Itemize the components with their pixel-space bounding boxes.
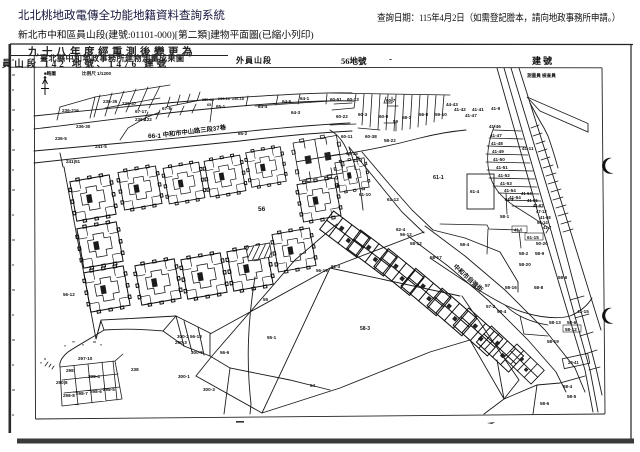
svg-text:290|8: 290|8 [56, 380, 68, 385]
svg-text:60-22: 60-22 [336, 114, 348, 119]
svg-text:41-7: 41-7 [543, 225, 552, 230]
svg-text:67-5: 67-5 [162, 106, 172, 111]
svg-text:66-1: 66-1 [148, 133, 161, 140]
svg-text:60-8: 60-8 [379, 114, 389, 119]
svg-text:58-9: 58-9 [535, 251, 545, 256]
svg-text:60-38: 60-38 [365, 134, 377, 139]
svg-text:測量員 檢查員: 測量員 檢查員 [527, 72, 556, 79]
svg-text:58-13: 58-13 [549, 320, 561, 325]
svg-text:58-4: 58-4 [460, 242, 470, 247]
svg-text:236-16: 236-16 [218, 97, 230, 101]
svg-text:41-48: 41-48 [491, 141, 503, 146]
svg-text:236-216: 236-216 [62, 108, 79, 113]
svg-text:58-22: 58-22 [384, 138, 396, 143]
svg-text:61-4: 61-4 [470, 189, 480, 194]
svg-text:55-1: 55-1 [267, 335, 277, 340]
svg-text:41-53: 41-53 [500, 181, 512, 186]
svg-text:比例尺 1/1200: 比例尺 1/1200 [82, 70, 112, 77]
svg-text:41-67: 41-67 [533, 203, 544, 208]
svg-text:58-17: 58-17 [430, 255, 442, 260]
svg-text:58-8: 58-8 [534, 285, 544, 290]
svg-text:56-19: 56-19 [316, 268, 328, 273]
svg-text:62-3: 62-3 [331, 264, 341, 269]
svg-text:57: 57 [485, 283, 491, 288]
svg-text:298-7: 298-7 [76, 391, 88, 396]
svg-text:238: 238 [131, 367, 139, 372]
svg-text:241-5: 241-5 [95, 144, 107, 149]
svg-text:58-4: 58-4 [563, 384, 573, 389]
svg-text:58-6: 58-6 [540, 401, 550, 406]
svg-text:236-122: 236-122 [135, 117, 152, 122]
svg-text:54: 54 [310, 383, 316, 388]
svg-text:55: 55 [263, 297, 269, 302]
svg-text:64-4: 64-4 [258, 104, 268, 109]
svg-text:56: 56 [258, 206, 266, 213]
svg-text:56-12: 56-12 [400, 232, 412, 237]
svg-text:65-1: 65-1 [216, 104, 226, 109]
svg-text:236-5: 236-5 [55, 136, 67, 141]
svg-text:56-8: 56-8 [419, 112, 429, 117]
svg-text:58-12: 58-12 [410, 241, 422, 246]
svg-text:58-20: 58-20 [519, 262, 531, 267]
svg-text:290-3: 290-3 [175, 340, 187, 345]
svg-text:64-5: 64-5 [282, 99, 292, 104]
svg-text:236-35: 236-35 [103, 99, 118, 104]
svg-text:41-64: 41-64 [521, 191, 532, 196]
svg-text:61-12: 61-12 [387, 197, 399, 202]
svg-text:58-2: 58-2 [519, 251, 529, 256]
svg-text:50-20: 50-20 [536, 241, 548, 246]
svg-text:■略圖: ■略圖 [44, 70, 56, 77]
svg-text:58-7: 58-7 [402, 115, 412, 120]
svg-text:59-10: 59-10 [435, 112, 447, 117]
svg-text:64-3: 64-3 [291, 110, 301, 115]
svg-text:56-13: 56-13 [190, 334, 202, 339]
svg-text:59: 59 [393, 119, 399, 124]
svg-text:300-5: 300-5 [191, 350, 203, 355]
svg-text:298-6: 298-6 [90, 389, 102, 394]
svg-text:60-51: 60-51 [330, 97, 342, 102]
svg-text:58-19: 58-19 [547, 339, 559, 344]
svg-text:300-2: 300-2 [177, 334, 189, 339]
svg-text:58-16: 58-16 [505, 285, 517, 290]
svg-text:61-10: 61-10 [359, 192, 371, 197]
svg-text:65: 65 [207, 103, 211, 107]
svg-text:300-1: 300-1 [178, 374, 190, 379]
svg-text:65-2: 65-2 [238, 131, 248, 136]
svg-text:60-15: 60-15 [346, 151, 358, 156]
svg-text:236-37: 236-37 [122, 101, 137, 106]
svg-text:61-15: 61-15 [527, 235, 539, 240]
svg-text:58-4: 58-4 [497, 309, 507, 314]
svg-text:58-5: 58-5 [567, 394, 577, 399]
svg-text:58-6: 58-6 [567, 320, 577, 325]
svg-text:67-17: 67-17 [135, 109, 147, 114]
svg-text:41-49: 41-49 [492, 149, 504, 154]
svg-text:60-7: 60-7 [386, 98, 396, 103]
svg-text:58-3: 58-3 [360, 326, 370, 332]
svg-text:56-12: 56-12 [63, 292, 75, 297]
svg-text:64-1: 64-1 [300, 96, 310, 101]
svg-text:23-41: 23-41 [568, 360, 579, 365]
svg-text:58-6: 58-6 [558, 275, 568, 280]
svg-text:61-1: 61-1 [433, 175, 444, 181]
svg-text:236-30: 236-30 [76, 124, 91, 129]
svg-text:241|51: 241|51 [66, 159, 81, 164]
svg-text:41-47: 41-47 [465, 113, 477, 118]
svg-text:298-4: 298-4 [88, 374, 100, 379]
svg-text:60-13: 60-13 [347, 97, 359, 102]
svg-text:57-2: 57-2 [486, 304, 496, 309]
svg-text:41-9: 41-9 [491, 106, 501, 111]
svg-text:61-3: 61-3 [505, 197, 514, 202]
svg-text:298-8: 298-8 [63, 393, 75, 398]
svg-text:41-42: 41-42 [454, 107, 466, 112]
svg-text:41-5: 41-5 [514, 228, 523, 233]
svg-text:41-50: 41-50 [493, 157, 505, 162]
svg-text:41-54: 41-54 [504, 188, 516, 193]
svg-text:41-47: 41-47 [490, 133, 502, 138]
svg-text:60-3: 60-3 [358, 112, 368, 117]
svg-text:56-6: 56-6 [220, 350, 230, 355]
svg-text:中和市自強街: 中和市自強街 [452, 263, 486, 294]
svg-text:41-41: 41-41 [472, 107, 484, 112]
svg-text:298: 298 [66, 368, 74, 373]
svg-text:58-12: 58-12 [565, 327, 577, 332]
svg-text:47-12: 47-12 [536, 209, 547, 214]
svg-text:298-5: 298-5 [103, 387, 115, 392]
svg-text:41-52: 41-52 [498, 173, 510, 178]
svg-text:58-1: 58-1 [500, 214, 510, 219]
svg-text:60-11: 60-11 [341, 134, 353, 139]
svg-text:300-3: 300-3 [203, 387, 215, 392]
svg-text:41-4: 41-4 [353, 158, 363, 163]
svg-text:41-51: 41-51 [496, 165, 508, 170]
svg-text:297-10: 297-10 [78, 356, 93, 361]
svg-text:41-46: 41-46 [489, 124, 501, 129]
svg-text:236-18: 236-18 [232, 97, 244, 101]
